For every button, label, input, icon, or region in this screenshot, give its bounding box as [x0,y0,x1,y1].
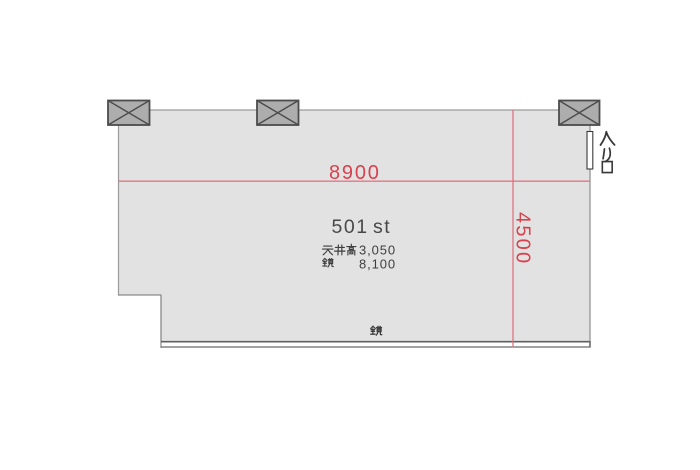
svg-text:501st: 501st [332,216,392,238]
svg-text:3,050: 3,050 [359,243,396,258]
svg-text:8900: 8900 [329,162,381,184]
svg-text:4500: 4500 [512,212,534,265]
svg-text:8,100: 8,100 [359,257,396,272]
